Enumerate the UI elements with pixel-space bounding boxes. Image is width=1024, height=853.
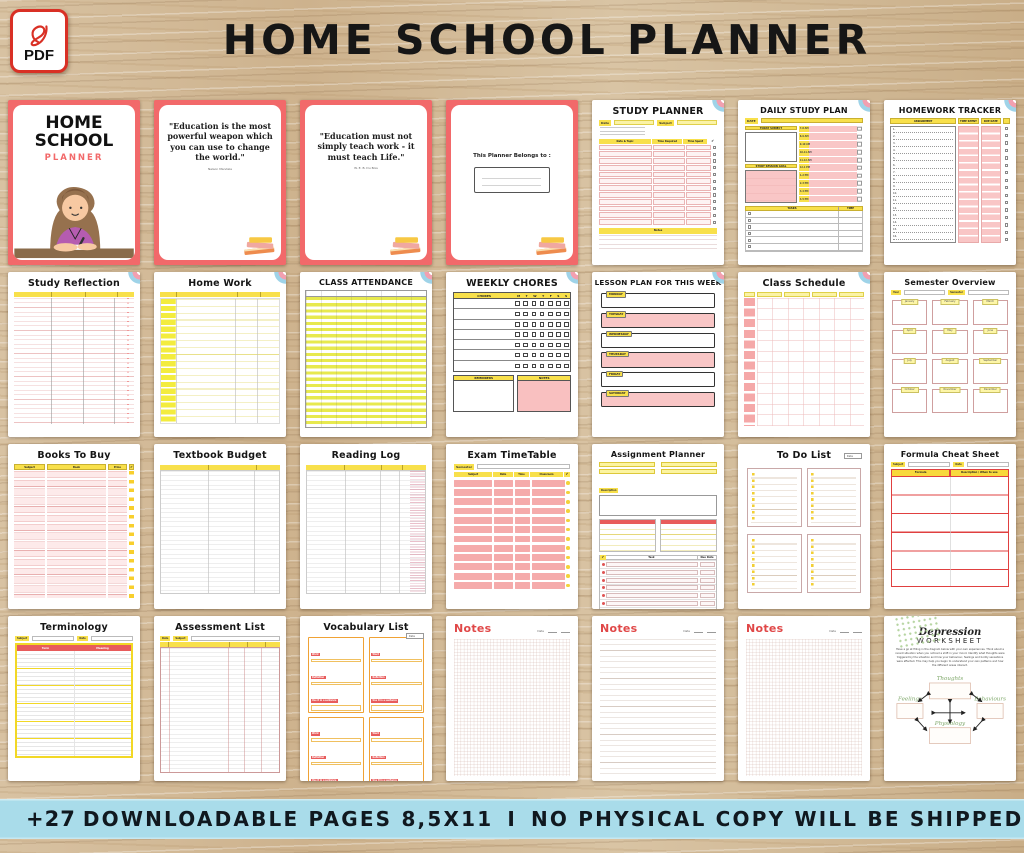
checkbox [532, 332, 537, 337]
notes-box: NOTES [517, 375, 571, 412]
table-row [599, 206, 717, 212]
quote-author: Nelson Mandela [159, 167, 281, 171]
checkbox [1005, 156, 1008, 159]
date-cell [494, 545, 514, 552]
date-field [761, 118, 863, 123]
page-notes-grid-1: Notes Date [446, 616, 578, 781]
cell [653, 206, 685, 212]
table-row [599, 172, 717, 178]
checkbox [748, 219, 751, 222]
exam-row [454, 506, 570, 515]
checkbox [564, 343, 569, 348]
checkbox [713, 166, 716, 169]
name-box [474, 167, 550, 193]
due-date-cell [700, 578, 715, 583]
lined-paper [600, 639, 716, 776]
checkbox [515, 364, 520, 369]
checkbox [515, 322, 520, 327]
checkbox [1005, 134, 1008, 137]
quote-author: W. E. B. Du Bois [305, 166, 427, 170]
schedule-grid [744, 298, 864, 426]
subject-cell [454, 517, 492, 524]
time-cell [515, 480, 530, 487]
subject-cell [454, 563, 492, 570]
table-header: ASSIGNMENT TIME SPENT DUE DATE [890, 118, 1010, 124]
task-row [600, 576, 716, 584]
month-box [932, 300, 967, 325]
mini-page-title: HOMEWORK TRACKER [886, 106, 1014, 115]
formula-table: Formula Description / When to use [891, 469, 1009, 587]
date-field [967, 462, 1009, 467]
lined-table [14, 298, 134, 424]
exam-row [454, 562, 570, 571]
page-depression-worksheet: Depression WORKSHEET Have a go at fillin… [884, 616, 1016, 781]
bullet-dot [602, 571, 605, 574]
date-line [561, 630, 570, 633]
page-textbook-budget: Textbook Budget [154, 444, 286, 609]
page-home-work: Home Work [154, 272, 286, 437]
classroom-cell [532, 573, 565, 580]
checkbox [548, 364, 553, 369]
page-count: +27 [26, 807, 76, 831]
chore-row [454, 350, 570, 360]
field-row: Subject Date [15, 636, 133, 641]
left-column: TODAY SUBJECT STUDY SESSION GOAL [745, 126, 797, 203]
date-field-label: DATE [745, 118, 758, 124]
table-header [14, 292, 134, 297]
checkbox [532, 301, 537, 306]
page-cover: HOME SCHOOL PLANNER [8, 100, 140, 265]
cell [653, 192, 685, 198]
notes-lines [599, 235, 717, 252]
mini-page-title: Vocabulary List [302, 622, 430, 633]
assignment-number-line: 12. [893, 207, 953, 212]
cell [599, 165, 652, 171]
checkbox [564, 332, 569, 337]
page-notes-grid-2: Notes Date [738, 616, 870, 781]
cell [686, 158, 711, 164]
task-rows [599, 560, 717, 609]
checkbox [515, 353, 520, 358]
exam-row [454, 553, 570, 562]
lined-area [600, 524, 655, 550]
cell [686, 219, 711, 225]
assignment-number-line: 5. [893, 157, 953, 162]
assignment-number-line: 15. [893, 228, 953, 233]
attendance-grid [305, 296, 427, 428]
check-circle [566, 565, 570, 569]
time-slot-column: 7-8 AM8-9 AM9-10 AM10-11 AM11-12 AM12-1 … [799, 126, 863, 203]
banner-divider: I [507, 807, 517, 831]
subject-cell [454, 582, 492, 589]
quote-inner: "Education is the most powerful weapon w… [159, 105, 281, 260]
vocabulary-card: Word Definition Use it in a sentence [308, 717, 364, 781]
bullet-dot [602, 594, 605, 597]
exam-row [454, 525, 570, 534]
physiology-box [930, 728, 971, 744]
lesson-day-box [601, 352, 715, 367]
definition-line [311, 762, 362, 765]
bullet-dot [602, 586, 605, 589]
date-line [707, 630, 716, 633]
checkbox [564, 322, 569, 327]
sentence-label: Use it in a sentence [311, 699, 338, 703]
month-box [973, 389, 1008, 414]
weekday-letters: MTWTFSS [514, 294, 570, 298]
cell [599, 178, 652, 184]
time-cell [515, 582, 530, 589]
cell [653, 212, 685, 218]
assignment-number-line: 10. [893, 192, 953, 197]
page-study-planner: STUDY PLANNER Date Subject Date & Topic … [592, 100, 724, 265]
checkbox-group [514, 364, 570, 369]
word-line [371, 659, 422, 662]
mini-page-title: Textbook Budget [156, 450, 284, 461]
assignment-number-line: 13. [893, 214, 953, 219]
mini-page-title: Semester Overview [886, 278, 1014, 287]
time-cell [515, 563, 530, 570]
due-date-cell [700, 570, 715, 575]
cell [653, 151, 685, 157]
cell [653, 178, 685, 184]
due-date-cell [700, 593, 715, 598]
cell [653, 199, 685, 205]
mini-page-title: Books To Buy [10, 450, 138, 461]
date-field-label: Date [77, 636, 87, 641]
check-column-header: ✔ [708, 139, 717, 144]
time-cell [515, 573, 530, 580]
cell [686, 172, 711, 178]
cover-title-line1: HOME [13, 114, 135, 132]
due-date-cell [700, 601, 715, 606]
checkbox [1005, 223, 1008, 226]
exam-row [454, 516, 570, 525]
checkbox [748, 239, 751, 242]
column-header: Price [108, 464, 127, 470]
month-box [932, 389, 967, 414]
tasks-label: TASKS [746, 207, 838, 210]
date-cell [494, 480, 514, 487]
classroom-cell [532, 563, 565, 570]
task-row [746, 244, 862, 251]
checkbox [548, 301, 553, 306]
date-cell [494, 563, 514, 570]
assignment-number-line: 16. [893, 235, 953, 240]
classroom-cell [532, 545, 565, 552]
time-slot-row: 12-1 PM [799, 164, 863, 171]
lined-table [306, 470, 426, 594]
task-cell [606, 593, 698, 598]
chore-row [454, 340, 570, 350]
todo-box [807, 534, 862, 593]
exam-row [454, 488, 570, 497]
checkbox [515, 343, 520, 348]
time-cell [515, 526, 530, 533]
field-row: Subject Date [891, 462, 1009, 467]
classroom-cell [532, 554, 565, 561]
subject-cell [454, 545, 492, 552]
book-column [47, 471, 106, 598]
mini-page-title: CLASS ATTENDANCE [302, 278, 430, 287]
table-row [599, 151, 717, 157]
classroom-cell [532, 480, 565, 487]
worksheet-intro: Have a go at filling in the diagram belo… [895, 648, 1005, 667]
word-label: Word [311, 653, 320, 657]
task-cell [606, 601, 698, 606]
subject-field [191, 636, 280, 641]
mini-page-title: STUDY PLANNER [594, 106, 722, 117]
check-circle [566, 519, 570, 523]
column-header: Meaning [74, 647, 131, 650]
exam-row [454, 571, 570, 580]
schedule-header [744, 292, 864, 297]
tasks-rows [745, 211, 863, 252]
bullet-dot [602, 563, 605, 566]
day-letter: S [565, 294, 567, 298]
field [661, 462, 717, 467]
column-header: Date & Topic [599, 139, 651, 144]
page-assessment-list: Assessment List Date Subject [154, 616, 286, 781]
subject-field [677, 120, 717, 125]
page-books-to-buy: Books To Buy Subject Book Price ✔ [8, 444, 140, 609]
page-notes-lined: Notes Date [592, 616, 724, 781]
table-row [599, 178, 717, 184]
table-row [599, 212, 717, 218]
section [17, 721, 131, 739]
subject-field [32, 636, 74, 641]
due-date-cell [700, 562, 715, 567]
checkbox [713, 153, 716, 156]
page-exam-timetable: Exam TimeTable Semester Subject Date Tim… [446, 444, 578, 609]
checkbox [748, 232, 751, 235]
date-label: Date [683, 629, 690, 633]
time-cell [515, 545, 530, 552]
notes-header: Notes Date [454, 622, 570, 635]
subject-field [908, 462, 950, 467]
assignment-list: 1.2.3.4.5.6.7.8.9.10.11.12.13.14.15.16. [890, 126, 956, 243]
time-slot-row: 9-10 AM [799, 141, 863, 148]
page-weekly-chores: WEEKLY CHORES CHORES MTWTFSS [446, 272, 578, 437]
notes-box [599, 519, 656, 552]
field-row: Year Semester [891, 290, 1009, 295]
month-box [892, 330, 927, 355]
time-slot-row: 8-9 AM [799, 133, 863, 140]
check-circle [566, 509, 570, 513]
column-header: TIME SPENT [958, 118, 978, 124]
cell [686, 212, 711, 218]
belongs-inner: This Planner Belongs to : [451, 105, 573, 260]
assignment-number-line: 4. [893, 149, 953, 154]
cell [686, 145, 711, 151]
year-field [904, 290, 945, 295]
checkbox-group [514, 332, 570, 337]
time-label: TIME [838, 207, 862, 210]
definition-label: Definition [371, 756, 386, 760]
classroom-cell [532, 517, 565, 524]
task-row [746, 211, 862, 218]
checkbox-group [514, 301, 570, 306]
definition-line [311, 682, 362, 685]
cell [686, 165, 711, 171]
cbt-diagram: Thoughts Feelings Behaviours Physiology [893, 669, 1007, 751]
checkbox [1005, 127, 1008, 130]
checkbox [1005, 164, 1008, 167]
task-row [600, 568, 716, 576]
checkbox [540, 312, 545, 317]
header-cell [744, 292, 755, 297]
chores-rows [453, 299, 571, 372]
day-letter: T [526, 294, 528, 298]
date-field: Date [537, 629, 570, 633]
day-letter: W [533, 294, 536, 298]
cell [653, 145, 685, 151]
definition-line [371, 682, 422, 685]
cell [653, 165, 685, 171]
lined-table [160, 647, 280, 773]
cell [686, 206, 711, 212]
mini-page-title: Study Reflection [10, 278, 138, 289]
task-row [600, 591, 716, 599]
column-header: Date [493, 472, 513, 478]
study-table: Date & Topic Time Required Time Spent ✔ [599, 139, 717, 226]
date-cell [494, 573, 514, 580]
acrobat-swirl-icon [24, 19, 54, 47]
todo-box [807, 468, 862, 527]
time-slot-row: 1-2 PM [799, 172, 863, 179]
subject-column [14, 471, 45, 598]
grid-paper [746, 639, 862, 776]
exam-row [454, 497, 570, 506]
label-feelings: Feelings [897, 697, 922, 703]
date-cell [494, 536, 514, 543]
lesson-day-box [601, 313, 715, 328]
task-row [746, 237, 862, 244]
checkbox [540, 332, 545, 337]
column-header: Subject [14, 464, 45, 470]
checkbox [564, 301, 569, 306]
task-row [746, 218, 862, 225]
checkbox [1005, 171, 1008, 174]
check-circle [566, 528, 570, 532]
subject-box [745, 132, 797, 162]
books-stack-illustration [388, 232, 424, 257]
bullet-dot [602, 579, 605, 582]
task-cell [606, 585, 698, 590]
header-cell [812, 292, 837, 297]
classroom-cell [532, 498, 565, 505]
session-box [745, 170, 797, 202]
time-cell [838, 244, 862, 250]
assignment-number-line: 7. [893, 171, 953, 176]
date-row: DATE [745, 118, 863, 124]
task-cell [606, 570, 698, 575]
exam-row [454, 534, 570, 543]
checkbox [713, 146, 716, 149]
page-class-attendance: CLASS ATTENDANCE [300, 272, 432, 437]
column-header-spacer [1003, 118, 1010, 124]
checkbox [713, 221, 716, 224]
mini-page-title: Assessment List [156, 622, 284, 633]
checkbox [1005, 201, 1008, 204]
notes-title: Notes [600, 622, 638, 635]
month-box [973, 330, 1008, 355]
sentence-label: Use it in a sentence [371, 699, 398, 703]
checkbox [713, 159, 716, 162]
month-box [932, 330, 967, 355]
check-circle [566, 584, 570, 588]
time-slot-row: 11-12 AM [799, 157, 863, 164]
column-header: Time Spent [683, 139, 707, 144]
table-row [599, 219, 717, 225]
checkbox-group [514, 312, 570, 317]
lined-table [160, 298, 280, 424]
assignment-number-line: 6. [893, 164, 953, 169]
checkbox [540, 364, 545, 369]
classroom-cell [532, 536, 565, 543]
checkbox [548, 353, 553, 358]
checkbox [1005, 149, 1008, 152]
behaviours-box [977, 704, 1003, 719]
task-row [600, 584, 716, 592]
checkbox [532, 353, 537, 358]
notes-title: Notes [746, 622, 784, 635]
notes-bar: Notes [599, 228, 717, 234]
column-header: Term [17, 647, 74, 650]
notes-header: Notes Date [746, 622, 862, 635]
checkbox [713, 200, 716, 203]
checkbox [532, 322, 537, 327]
time-slot-row: 10-11 AM [799, 149, 863, 156]
checkbox [748, 245, 751, 248]
time-cell [838, 224, 862, 230]
date-line [840, 630, 849, 633]
checkbox [515, 332, 520, 337]
assignment-number-line: 11. [893, 199, 953, 204]
page-terminology: Terminology Subject Date Term Meaning [8, 616, 140, 781]
sentence-box [371, 705, 422, 711]
task-row [600, 599, 716, 607]
date-field: Date [844, 453, 862, 459]
cell [599, 151, 652, 157]
date-cell [494, 498, 514, 505]
dots-decoration [893, 616, 942, 651]
exam-row [454, 581, 570, 590]
checkbox-group [514, 343, 570, 348]
subject-cell [454, 554, 492, 561]
chore-row [454, 309, 570, 319]
lesson-day-box [601, 293, 715, 308]
vocabulary-cards: Word Definition Use it in a sentence Wor… [308, 637, 424, 781]
page-vocabulary-list: Vocabulary List Date Word Definition Use… [300, 616, 432, 781]
table-row [599, 185, 717, 191]
checkbox [713, 180, 716, 183]
banner-text: DOWNLOADABLE PAGES 8,5X11INO PHYSICAL CO… [76, 807, 1024, 831]
cell [686, 185, 711, 191]
day-letter: M [517, 294, 520, 298]
info-lines [600, 127, 645, 138]
section [17, 738, 131, 756]
checkbox [713, 173, 716, 176]
time-cell [838, 237, 862, 243]
due-date-column-label: Due Date [697, 556, 716, 559]
field-row: Date Subject [599, 120, 717, 126]
check-column-header: ✔ [564, 472, 570, 478]
checkbox [523, 322, 528, 327]
definition-label: Definition [311, 676, 326, 680]
sentence-label: Use it in a sentence [311, 779, 338, 781]
date-field-label: Date [953, 462, 963, 467]
column-header: ASSIGNMENT [890, 118, 956, 124]
